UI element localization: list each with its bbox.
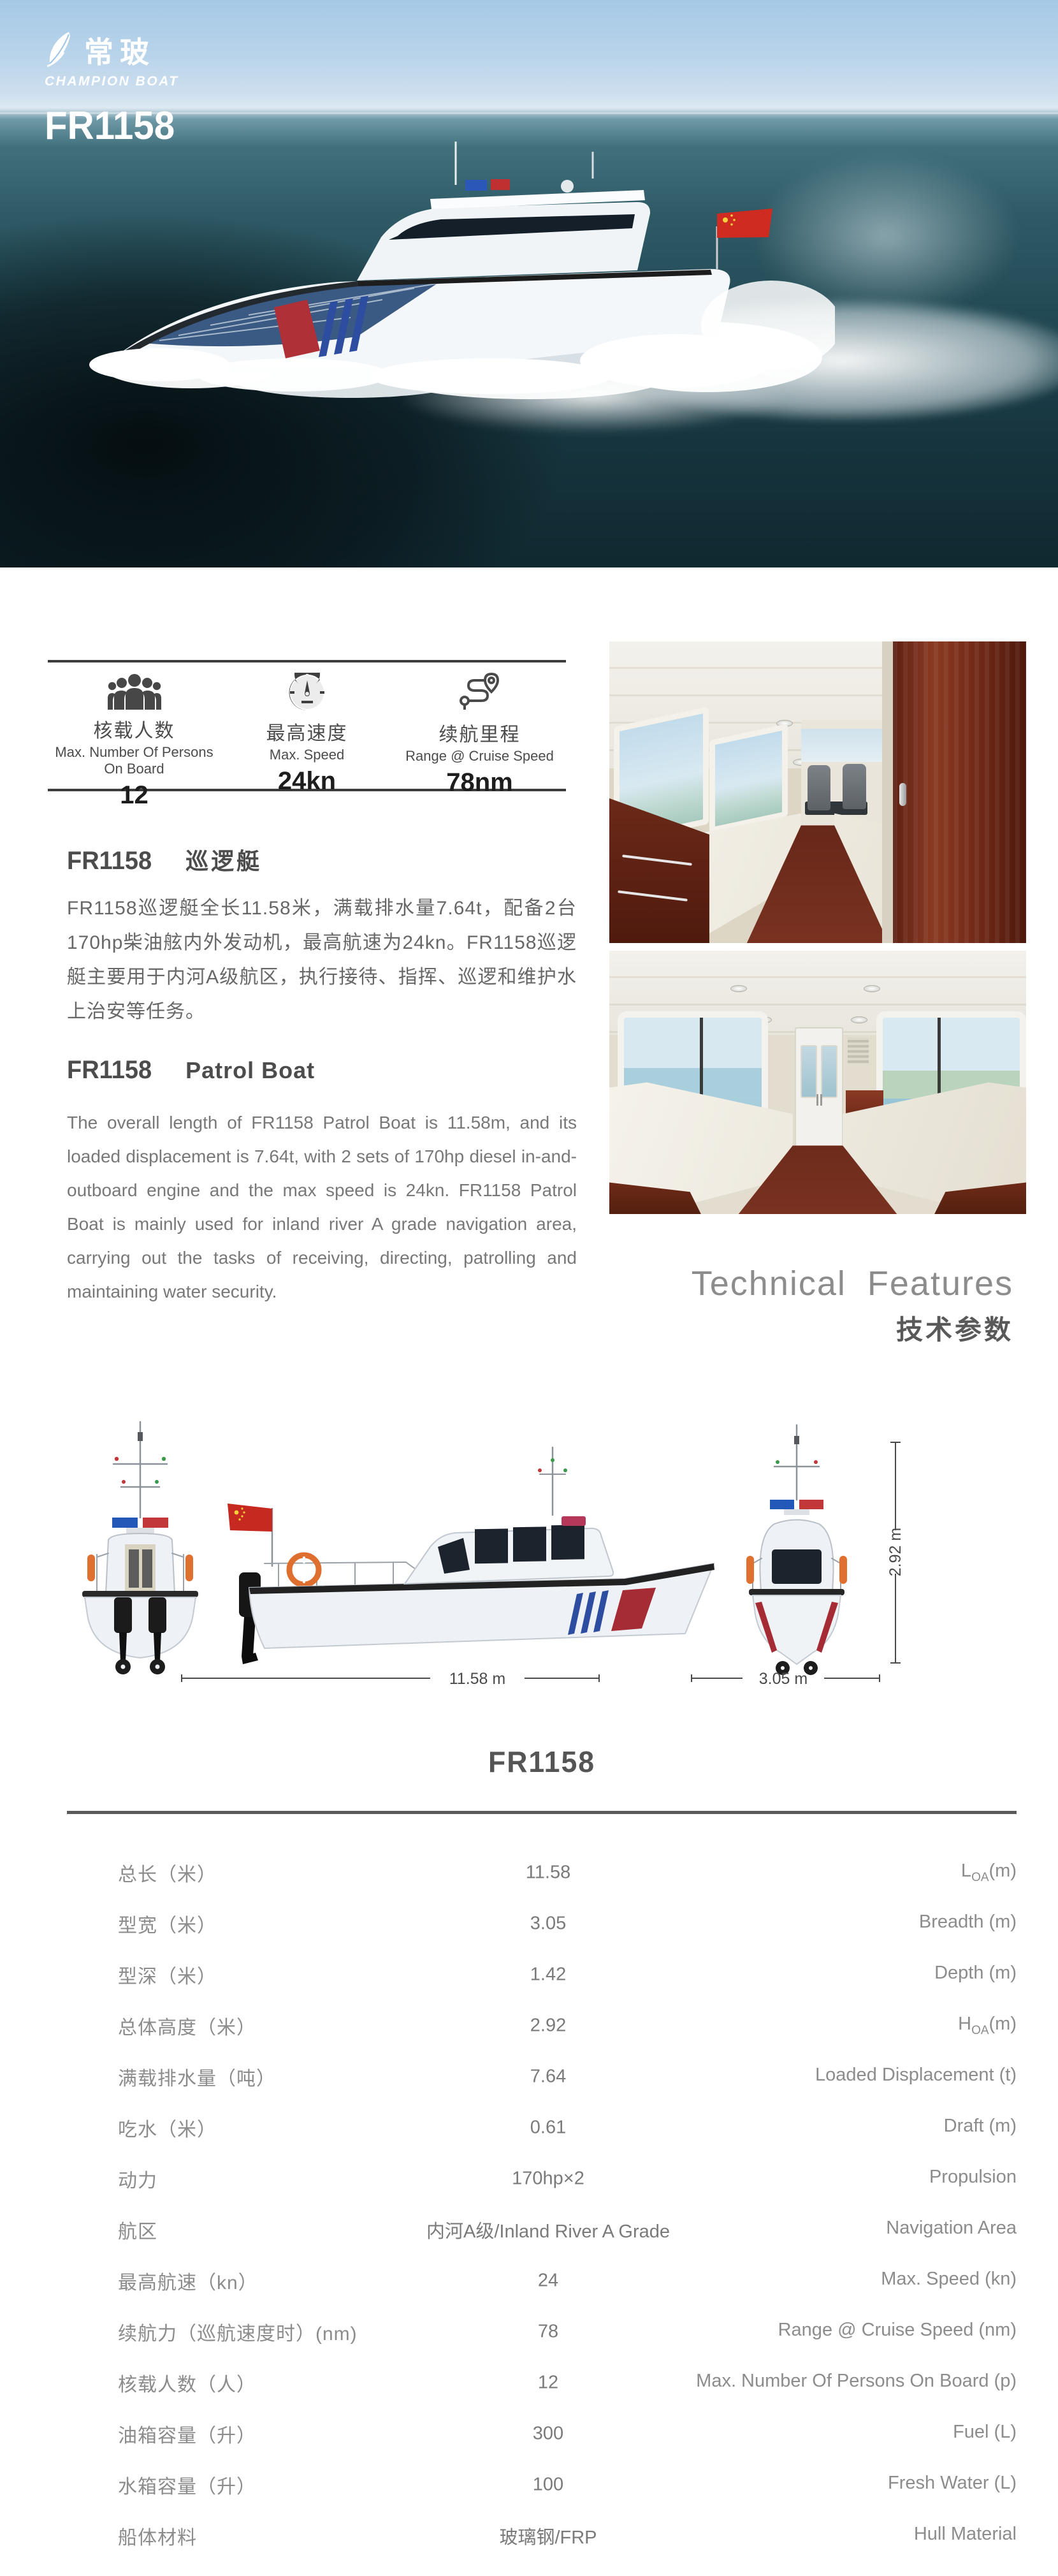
row-label-en: Fuel (L) — [953, 2422, 1017, 2446]
table-row: 续航力（巡航速度时）(nm) 78 Range @ Cruise Speed (… — [67, 2306, 1017, 2357]
row-label-cn: 核载人数（人） — [118, 2369, 256, 2397]
table-row: 核载人数（人） 12 Max. Number Of Persons On Boa… — [67, 2357, 1017, 2408]
row-label-en: Navigation Area — [886, 2218, 1017, 2242]
row-label-cn: 续航力（巡航速度时）(nm) — [118, 2318, 358, 2346]
side-view-drawing — [228, 1447, 714, 1664]
row-label-cn: 最高航速（kn） — [118, 2267, 258, 2295]
row-value: 玻璃钢/FRP — [357, 2522, 739, 2549]
table-row: 总长（米） 11.58 LOA(m) — [67, 1847, 1017, 1898]
row-label-en: Max. Speed (kn) — [881, 2269, 1017, 2293]
table-row: 型深（米） 1.42 Depth (m) — [67, 1949, 1017, 2000]
stern-view-drawing — [82, 1422, 198, 1674]
quick-spec-label-en: Max. Speed — [228, 747, 387, 763]
table-row: 最高航速（kn） 24 Max. Speed (kn) — [67, 2255, 1017, 2306]
row-label-en: LOA(m) — [961, 1861, 1017, 1885]
door-handle — [899, 783, 906, 806]
row-label-en: Draft (m) — [944, 2116, 1017, 2140]
quick-spec-label-en: Range @ Cruise Speed — [400, 748, 560, 765]
ceiling-light — [864, 985, 880, 992]
row-value: 11.58 — [357, 1862, 739, 1884]
row-label-cn: 动力 — [118, 2165, 157, 2193]
brochure-page: 常玻 CHAMPION BOAT FR1158 核载人数 Max. Number… — [0, 0, 1058, 2576]
quick-spec-value: 24kn — [278, 767, 336, 796]
quick-spec-speed: 最高速度 Max. Speed 24kn — [221, 662, 393, 789]
helm-seat — [808, 765, 831, 810]
patrol-boat-illustration — [83, 83, 835, 440]
row-label-en: Hull Material — [914, 2524, 1017, 2548]
height-dimension-label: 2.92 m — [887, 1528, 904, 1576]
length-dimension-label: 11.58 m — [449, 1670, 505, 1688]
row-label-en: HOA(m) — [958, 2014, 1017, 2038]
brand-name-cn: 常玻 — [84, 29, 156, 71]
quick-spec-range: 续航里程 Range @ Cruise Speed 78nm — [393, 662, 566, 789]
row-label-cn: 总长（米） — [118, 1859, 217, 1887]
cn-description: FR1158巡逻艇全长11.58米，满载排水量7.64t，配备2台170hp柴油… — [67, 891, 577, 1029]
row-label-en: Loaded Displacement (t) — [815, 2065, 1017, 2089]
row-value: 78 — [357, 2322, 739, 2343]
wall-vent — [848, 1037, 869, 1064]
table-row: 航区 内河A级/Inland River A Grade Navigation … — [67, 2204, 1017, 2255]
row-label-cn: 水箱容量（升） — [118, 2471, 256, 2499]
spec-table: 总长（米） 11.58 LOA(m) 型宽（米） 3.05 Breadth (m… — [67, 1847, 1017, 2561]
row-label-cn: 船体材料 — [118, 2522, 197, 2550]
table-row: 满载排水量（吨） 7.64 Loaded Displacement (t) — [67, 2051, 1017, 2102]
cn-section-title: FR1158 巡逻艇 — [67, 843, 262, 876]
model-number: FR1158 — [67, 847, 152, 875]
row-label-cn: 型宽（米） — [118, 1910, 217, 1938]
tech-heading-cn: 技术参数 — [504, 1308, 1013, 1347]
interior-photo-forward — [609, 641, 1026, 943]
table-row: 动力 170hp×2 Propulsion — [67, 2153, 1017, 2204]
front-view-drawing — [746, 1425, 847, 1675]
beam-dimension-label: 3.05 m — [759, 1670, 808, 1688]
table-rule — [67, 1811, 1017, 1814]
quick-spec-label-cn: 续航里程 — [439, 719, 521, 747]
cabin-door — [893, 641, 1026, 943]
row-value: 100 — [357, 2475, 739, 2496]
table-row: 总体高度（米） 2.92 HOA(m) — [67, 2000, 1017, 2051]
table-row: 吃水（米） 0.61 Draft (m) — [67, 2102, 1017, 2153]
row-value: 内河A级/Inland River A Grade — [357, 2216, 739, 2243]
row-value: 12 — [357, 2373, 739, 2394]
door-frame — [882, 641, 893, 943]
row-value: 0.61 — [357, 2118, 739, 2139]
row-label-cn: 总体高度（米） — [118, 2012, 256, 2040]
helm-seat — [843, 764, 866, 809]
quick-spec-bar: 核载人数 Max. Number Of Persons On Board 12 … — [48, 660, 566, 791]
section-title-en: Patrol Boat — [185, 1057, 315, 1084]
row-label-cn: 吃水（米） — [118, 2114, 217, 2142]
aft-double-door — [795, 1027, 843, 1156]
quick-spec-label-cn: 核载人数 — [94, 715, 175, 743]
cabin-window — [709, 724, 788, 833]
row-value: 7.64 — [357, 2067, 739, 2088]
spec-table-title: FR1158 — [81, 1745, 1002, 1779]
row-label-cn: 油箱容量（升） — [118, 2420, 256, 2448]
row-value: 3.05 — [357, 1914, 739, 1935]
interior-photo-aft — [609, 951, 1026, 1214]
row-value: 2.92 — [357, 2016, 739, 2037]
quick-spec-label-en: Max. Number Of Persons On Board — [55, 744, 214, 777]
hero-model-number: FR1158 — [45, 103, 175, 149]
feather-logo-icon — [45, 31, 78, 71]
quick-spec-value: 78nm — [446, 768, 513, 797]
persons-group-icon — [108, 673, 161, 710]
row-label-en: Range @ Cruise Speed (nm) — [778, 2320, 1017, 2344]
table-row: 型宽（米） 3.05 Breadth (m) — [67, 1898, 1017, 1949]
row-label-cn: 航区 — [118, 2216, 157, 2244]
ceiling-light — [730, 985, 747, 992]
hero-image: 常玻 CHAMPION BOAT FR1158 — [0, 0, 1058, 567]
table-row: 水箱容量（升） 100 Fresh Water (L) — [67, 2459, 1017, 2510]
en-section-title: FR1158 Patrol Boat — [67, 1056, 315, 1085]
row-label-en: Max. Number Of Persons On Board (p) — [696, 2371, 1017, 2395]
section-title-cn: 巡逻艇 — [185, 843, 262, 876]
route-pin-icon — [460, 673, 500, 714]
quick-spec-label-cn: 最高速度 — [266, 717, 348, 745]
row-value: 170hp×2 — [357, 2169, 739, 2190]
technical-features-heading: Technical Features 技术参数 — [504, 1264, 1013, 1347]
row-label-cn: 型深（米） — [118, 1961, 217, 1989]
door-handle — [816, 1094, 818, 1106]
brand-name-en: CHAMPION BOAT — [45, 74, 183, 89]
door-handle — [820, 1094, 822, 1106]
row-value: 24 — [357, 2271, 739, 2292]
model-number: FR1158 — [67, 1056, 152, 1085]
brand-block: 常玻 CHAMPION BOAT FR1158 — [45, 29, 183, 149]
en-description: The overall length of FR1158 Patrol Boat… — [67, 1106, 577, 1308]
row-value: 300 — [357, 2424, 739, 2445]
tech-heading-en: Technical Features — [504, 1264, 1013, 1303]
row-label-en: Fresh Water (L) — [888, 2473, 1017, 2497]
row-label-cn: 满载排水量（吨） — [118, 2063, 276, 2091]
row-label-en: Breadth (m) — [919, 1912, 1017, 1936]
quick-spec-persons: 核载人数 Max. Number Of Persons On Board 12 — [48, 662, 221, 789]
table-row: 油箱容量（升） 300 Fuel (L) — [67, 2408, 1017, 2459]
dimension-drawings: 11.58 m 3.05 m 2.92 m — [48, 1403, 1010, 1696]
speedometer-icon — [287, 673, 327, 712]
row-value: 1.42 — [357, 1965, 739, 1986]
quick-spec-value: 12 — [120, 781, 149, 810]
row-label-en: Propulsion — [929, 2167, 1017, 2191]
row-label-en: Depth (m) — [934, 1963, 1017, 1987]
table-row: 船体材料 玻璃钢/FRP Hull Material — [67, 2510, 1017, 2561]
windshield — [801, 729, 893, 762]
